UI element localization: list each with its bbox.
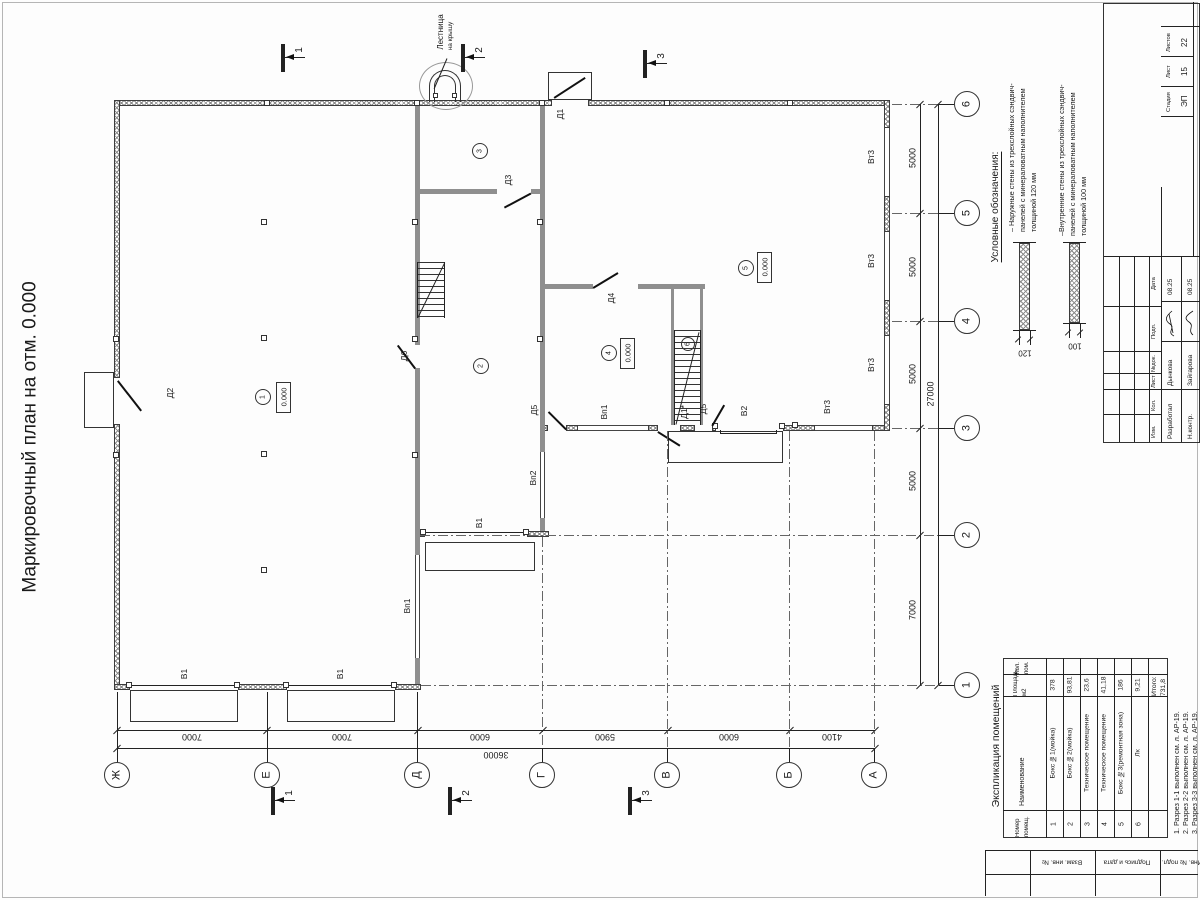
grid-bubble: 4 bbox=[954, 308, 980, 334]
legend-dim-text: 120 bbox=[1018, 349, 1031, 358]
frame-line bbox=[1160, 850, 1161, 896]
column bbox=[792, 422, 798, 428]
bubble-stem bbox=[939, 104, 954, 105]
stamp-stage-value: ЭП bbox=[1180, 96, 1189, 108]
legend-item-text: –Внутренние стены из трехслойных сэндвич… bbox=[1056, 60, 1092, 236]
stamp-line bbox=[1161, 301, 1200, 302]
door-label: Д1 bbox=[556, 109, 565, 119]
stamp-name: Зайгарова bbox=[1187, 355, 1194, 386]
stamp-line bbox=[1104, 373, 1161, 374]
grid-bubble: 1 bbox=[954, 672, 980, 698]
stamp-line bbox=[1104, 351, 1161, 352]
window bbox=[884, 232, 890, 300]
door-label: Д5 bbox=[699, 404, 708, 414]
wall-interior bbox=[415, 658, 420, 684]
stamp-line bbox=[1161, 56, 1193, 57]
table-line bbox=[1003, 696, 1168, 697]
column bbox=[261, 451, 267, 457]
gate-jamb bbox=[391, 682, 397, 688]
gate-jamb bbox=[234, 682, 240, 688]
grid-letter: В bbox=[662, 771, 673, 778]
wall-exterior bbox=[238, 684, 287, 690]
frame-line bbox=[1095, 850, 1096, 896]
wall-interior bbox=[545, 284, 593, 289]
room-number: 1 bbox=[260, 395, 267, 399]
grid-letter: Д bbox=[412, 771, 423, 778]
table-cell: 93,81 bbox=[1068, 676, 1075, 693]
legend-item-text: – Наружные стены из трехслойных сэндвич-… bbox=[1006, 60, 1042, 232]
wall-exterior bbox=[884, 100, 890, 128]
grid-number: 1 bbox=[962, 682, 973, 688]
stamp-line bbox=[1161, 86, 1193, 87]
table-header: Номер помещ. bbox=[1014, 811, 1034, 837]
table-line bbox=[1097, 658, 1098, 838]
table-header: Площадь, м2 bbox=[1012, 675, 1032, 696]
room-number: 6 bbox=[685, 342, 692, 346]
gate-apron bbox=[287, 690, 395, 722]
table-cell: Бокс №2(мойка) bbox=[1068, 727, 1075, 778]
wall-interior bbox=[540, 106, 545, 452]
window-label: Вт3 bbox=[867, 254, 876, 268]
table-total: Итого: 731,8 bbox=[1150, 659, 1167, 696]
gate-line bbox=[130, 685, 238, 686]
stamp-header: Изм. bbox=[1151, 426, 1157, 438]
stamp-line bbox=[1161, 26, 1200, 27]
room-circle: 1 bbox=[255, 389, 271, 405]
wall-interior bbox=[540, 518, 545, 531]
grid-bubble: Г bbox=[529, 762, 555, 788]
entrance-vestibule bbox=[84, 372, 114, 428]
dim-line bbox=[117, 730, 875, 731]
room-number: 3 bbox=[477, 149, 484, 153]
window bbox=[578, 425, 648, 431]
window bbox=[815, 425, 872, 431]
table-cell: Лк bbox=[1136, 749, 1143, 756]
gate-line bbox=[776, 430, 777, 434]
dim-text: 7000 bbox=[182, 732, 202, 742]
legend-cap bbox=[1013, 330, 1036, 331]
bubble-stem bbox=[939, 321, 954, 322]
elevation-box: 0.000 bbox=[757, 252, 772, 283]
dim-text-total: 27000 bbox=[927, 381, 936, 406]
table-cell: 6 bbox=[1136, 822, 1143, 826]
table-header: Наименование bbox=[1018, 700, 1030, 806]
section-number: 3 bbox=[657, 53, 667, 59]
frame-line bbox=[985, 850, 986, 896]
grid-bubble: В bbox=[654, 762, 680, 788]
stamp-line bbox=[1104, 389, 1200, 390]
gate-line bbox=[287, 685, 395, 686]
wall-exterior bbox=[783, 425, 815, 431]
grid-number: 4 bbox=[962, 318, 973, 324]
legend-cap bbox=[1063, 242, 1086, 243]
room-number: 2 bbox=[478, 364, 485, 368]
dim-line bbox=[117, 748, 875, 749]
bubble-stem bbox=[874, 749, 875, 762]
bubble-stem bbox=[789, 749, 790, 762]
roof-ladder-post bbox=[433, 93, 438, 98]
dim-line bbox=[920, 104, 921, 685]
door-label: Д6 bbox=[400, 351, 409, 361]
grid-bubble: 6 bbox=[954, 91, 980, 117]
column bbox=[537, 336, 543, 342]
window bbox=[884, 128, 890, 196]
gate-label: В1 bbox=[475, 518, 484, 528]
table-cell: Техническое помещение bbox=[1102, 714, 1109, 792]
extension-line bbox=[417, 692, 418, 754]
grid-number: 2 bbox=[962, 532, 973, 538]
grid-line bbox=[892, 104, 938, 105]
dim-text: 7000 bbox=[909, 600, 918, 620]
dim-text: 7000 bbox=[332, 732, 352, 742]
note-line: 3. Разрез 3-3 выполнен см. л. АР-19. bbox=[1190, 656, 1200, 834]
title-block: Изм. Кол. Лист №док. Подп. Дата Разработ… bbox=[1103, 3, 1200, 443]
gate-label: В2 bbox=[740, 406, 749, 416]
gate-jamb bbox=[779, 423, 785, 429]
stamp-header: Кол. bbox=[1151, 400, 1157, 411]
frame-strip-label: Инв. № подл. bbox=[1162, 859, 1200, 866]
table-cell: 9,21 bbox=[1136, 678, 1143, 691]
grid-bubble: Е bbox=[254, 762, 280, 788]
legend-dim-text: 100 bbox=[1068, 342, 1081, 351]
wall-exterior bbox=[114, 100, 552, 106]
column bbox=[264, 100, 270, 106]
column bbox=[412, 452, 418, 458]
elevation-value: 0.000 bbox=[624, 344, 632, 363]
table-line bbox=[1063, 658, 1064, 838]
wall-exterior bbox=[588, 100, 890, 106]
wall-exterior bbox=[566, 425, 578, 431]
window bbox=[540, 452, 545, 518]
room-number: 4 bbox=[606, 351, 613, 355]
gate-label: В1 bbox=[336, 669, 345, 679]
elevation-value: 0.000 bbox=[761, 258, 769, 277]
legend-cap bbox=[1013, 242, 1036, 243]
grid-letter: Е bbox=[262, 771, 273, 778]
grid-bubble: 2 bbox=[954, 522, 980, 548]
table-line bbox=[1131, 658, 1132, 838]
grid-letter: Г bbox=[537, 772, 548, 778]
stamp-header: Подп. bbox=[1151, 324, 1157, 339]
gate-line bbox=[720, 430, 721, 434]
grid-line bbox=[892, 213, 938, 214]
door-label: Д4 bbox=[607, 293, 616, 303]
section-mark-bar bbox=[643, 50, 647, 78]
table-cell: 1 bbox=[1051, 822, 1058, 826]
wall-interior bbox=[415, 368, 420, 555]
wall-interior bbox=[531, 189, 540, 194]
room-circle: 6 bbox=[681, 337, 695, 351]
column bbox=[664, 100, 670, 106]
grid-bubble: Б bbox=[776, 762, 802, 788]
door-label: Д2 bbox=[166, 388, 175, 398]
dim-text: 5000 bbox=[909, 148, 918, 168]
stamp-date: 08.25 bbox=[1167, 279, 1174, 295]
bubble-stem bbox=[939, 535, 954, 536]
grid-number: 3 bbox=[962, 425, 973, 431]
table-line bbox=[1148, 658, 1149, 838]
door-label: Д5 bbox=[530, 405, 539, 415]
stamp-header: Дата bbox=[1151, 277, 1157, 290]
gate-jamb bbox=[283, 682, 289, 688]
window-label: Вп2 bbox=[529, 471, 538, 486]
table-cell: 378 bbox=[1051, 679, 1058, 690]
wall-exterior bbox=[527, 531, 549, 537]
grid-letter: Б bbox=[784, 771, 795, 778]
column bbox=[261, 219, 267, 225]
elevation-value: 0.000 bbox=[280, 388, 288, 407]
frame-strip-label: Подпись и дата bbox=[1104, 859, 1151, 866]
frame-line bbox=[1030, 850, 1031, 896]
roof-ladder-post bbox=[452, 93, 457, 98]
gate-apron bbox=[425, 542, 535, 571]
section-number: 1 bbox=[295, 47, 305, 53]
table-cell: 5 bbox=[1119, 822, 1126, 826]
gate-line bbox=[425, 532, 527, 533]
stamp-sheet-label: Лист bbox=[1166, 65, 1172, 78]
bubble-stem bbox=[267, 749, 268, 762]
grid-line bbox=[542, 537, 543, 755]
stamp-role: Н.контр. bbox=[1187, 414, 1194, 439]
section-number: 3 bbox=[642, 790, 652, 796]
section-mark-bar bbox=[271, 787, 275, 815]
bubble-stem bbox=[417, 749, 418, 762]
table-cell: Техническое помещение bbox=[1085, 714, 1092, 792]
section-arrow-icon bbox=[286, 54, 294, 60]
wall-exterior bbox=[884, 196, 890, 232]
room-circle: 5 bbox=[738, 260, 754, 276]
room-circle: 2 bbox=[473, 358, 489, 374]
grid-bubble: А bbox=[861, 762, 887, 788]
elevation-box: 0.000 bbox=[276, 382, 291, 413]
wall-interior bbox=[420, 189, 497, 194]
window bbox=[415, 555, 420, 658]
section-number: 2 bbox=[475, 47, 485, 53]
section-number: 1 bbox=[285, 790, 295, 796]
dim-text: 5000 bbox=[909, 471, 918, 491]
legend-wall-swatch bbox=[1019, 243, 1030, 330]
table-cell: 186 bbox=[1119, 679, 1126, 690]
grid-bubble: Д bbox=[404, 762, 430, 788]
section-arrow-icon bbox=[276, 797, 284, 803]
column bbox=[412, 336, 418, 342]
table-line bbox=[1114, 658, 1115, 838]
stamp-stage-label: Стадия bbox=[1166, 92, 1172, 112]
room-circle: 3 bbox=[472, 143, 488, 159]
grid-bubble: 3 bbox=[954, 415, 980, 441]
table-cell: Бокс №1(мойка) bbox=[1051, 727, 1058, 778]
dim-text: 4100 bbox=[822, 732, 842, 742]
column bbox=[539, 100, 545, 106]
grid-line bbox=[667, 431, 668, 755]
frame-line bbox=[985, 850, 1198, 851]
extension-line bbox=[267, 692, 268, 754]
stamp-role: Разработал bbox=[1167, 404, 1174, 439]
table-line bbox=[1080, 658, 1081, 838]
window-label: Вт3 bbox=[867, 358, 876, 372]
stamp-line bbox=[1181, 257, 1182, 442]
table-cell: 2 bbox=[1068, 822, 1075, 826]
grid-bubble: 5 bbox=[954, 200, 980, 226]
drawing-sheet: Маркировочный план на отм. 0.000 bbox=[0, 0, 1200, 900]
door-label: Д1* bbox=[680, 405, 689, 419]
stamp-line bbox=[1104, 306, 1161, 307]
legend-heading: Условные обозначения: bbox=[991, 152, 1001, 263]
roof-ladder-label2: на крышу bbox=[448, 22, 455, 51]
section-arrow-icon bbox=[633, 797, 641, 803]
legend-cap bbox=[1063, 323, 1086, 324]
section-arrow-icon bbox=[453, 797, 461, 803]
grid-number: 6 bbox=[962, 101, 973, 107]
elevation-box: 0.000 bbox=[620, 338, 635, 369]
stamp-line bbox=[1161, 341, 1200, 342]
grid-letter: Ж bbox=[112, 770, 123, 780]
section-number: 2 bbox=[462, 790, 472, 796]
table-cell: 4 bbox=[1102, 822, 1109, 826]
bubble-stem bbox=[939, 428, 954, 429]
gate-label: В1 bbox=[180, 669, 189, 679]
dim-text: 6000 bbox=[470, 732, 490, 742]
wall-exterior bbox=[114, 424, 120, 690]
dim-line bbox=[938, 104, 939, 685]
gate-jamb bbox=[126, 682, 132, 688]
frame-strip-label: Взам. инв. № bbox=[1042, 859, 1082, 866]
stamp-line bbox=[1193, 2, 1194, 257]
stamp-line bbox=[1161, 187, 1162, 442]
grid-line bbox=[892, 321, 938, 322]
column bbox=[537, 219, 543, 225]
gate-apron bbox=[130, 690, 238, 722]
bubble-stem bbox=[542, 749, 543, 762]
gate-line bbox=[720, 433, 777, 434]
frame-line bbox=[985, 874, 1198, 875]
column bbox=[412, 219, 418, 225]
grid-line bbox=[420, 535, 938, 536]
section-mark-bar bbox=[448, 787, 452, 815]
column bbox=[113, 336, 119, 342]
room-number: 5 bbox=[743, 266, 750, 270]
bubble-stem bbox=[117, 749, 118, 762]
window-label: Вт3 bbox=[823, 400, 832, 414]
section-mark-bar bbox=[461, 44, 465, 72]
dim-text-total: 36000 bbox=[483, 750, 508, 760]
roof-ladder-label: Лестница bbox=[437, 14, 445, 49]
window bbox=[884, 336, 890, 404]
grid-line bbox=[421, 685, 938, 686]
signature bbox=[1164, 308, 1178, 338]
wall-exterior bbox=[648, 425, 658, 431]
table-cell: 41,18 bbox=[1102, 676, 1109, 693]
section-arrow-icon bbox=[648, 60, 656, 66]
table-cell: 3 bbox=[1085, 822, 1092, 826]
stamp-sheet-value: 15 bbox=[1180, 67, 1189, 76]
gate-apron bbox=[668, 431, 783, 463]
door-label: Д3 bbox=[504, 175, 513, 185]
column bbox=[261, 335, 267, 341]
room-table-title: Экспликация помещений bbox=[991, 685, 1002, 808]
plan-title: Маркировочный план на отм. 0.000 bbox=[21, 281, 40, 592]
grid-line bbox=[789, 431, 790, 755]
stamp-name: Дынкова bbox=[1167, 360, 1174, 386]
dim-text: 6000 bbox=[719, 732, 739, 742]
grid-line bbox=[892, 428, 938, 429]
window-label: Вп1 bbox=[403, 599, 412, 614]
table-cell: Бокс №3(ремонтная зона) bbox=[1119, 712, 1126, 794]
stamp-header: Лист bbox=[1151, 375, 1157, 388]
column bbox=[414, 100, 420, 106]
bubble-stem bbox=[667, 749, 668, 762]
dim-text: 5900 bbox=[595, 732, 615, 742]
section-mark-bar bbox=[628, 787, 632, 815]
section-arrow-icon bbox=[466, 54, 474, 60]
grid-line bbox=[874, 431, 875, 755]
dim-text: 5000 bbox=[909, 257, 918, 277]
dim-text: 5000 bbox=[909, 364, 918, 384]
wall-exterior bbox=[884, 404, 890, 431]
stamp-line bbox=[1161, 116, 1193, 117]
window-label: Вп1 bbox=[600, 405, 609, 420]
column bbox=[113, 452, 119, 458]
table-line bbox=[1046, 658, 1047, 838]
wall-exterior bbox=[395, 684, 421, 690]
grid-number: 5 bbox=[962, 210, 973, 216]
stamp-line bbox=[1104, 414, 1161, 415]
legend-wall-swatch bbox=[1069, 243, 1080, 323]
column bbox=[787, 100, 793, 106]
section-mark-bar bbox=[281, 44, 285, 72]
stamp-sheets-value: 22 bbox=[1180, 38, 1189, 47]
stamp-header: №док. bbox=[1151, 355, 1157, 372]
grid-bubble: Ж bbox=[104, 762, 130, 788]
stamp-date: 08.25 bbox=[1187, 279, 1194, 295]
wall-exterior bbox=[884, 300, 890, 336]
bubble-stem bbox=[939, 213, 954, 214]
column bbox=[261, 567, 267, 573]
window-label: Вт3 bbox=[867, 150, 876, 164]
extension-line bbox=[117, 692, 118, 754]
room-circle: 4 bbox=[601, 345, 617, 361]
signature bbox=[1184, 308, 1198, 338]
bubble-stem bbox=[939, 685, 954, 686]
stamp-sheets-label: Листов bbox=[1166, 33, 1172, 52]
table-cell: 23,6 bbox=[1085, 678, 1092, 691]
grid-letter: А bbox=[869, 771, 880, 778]
